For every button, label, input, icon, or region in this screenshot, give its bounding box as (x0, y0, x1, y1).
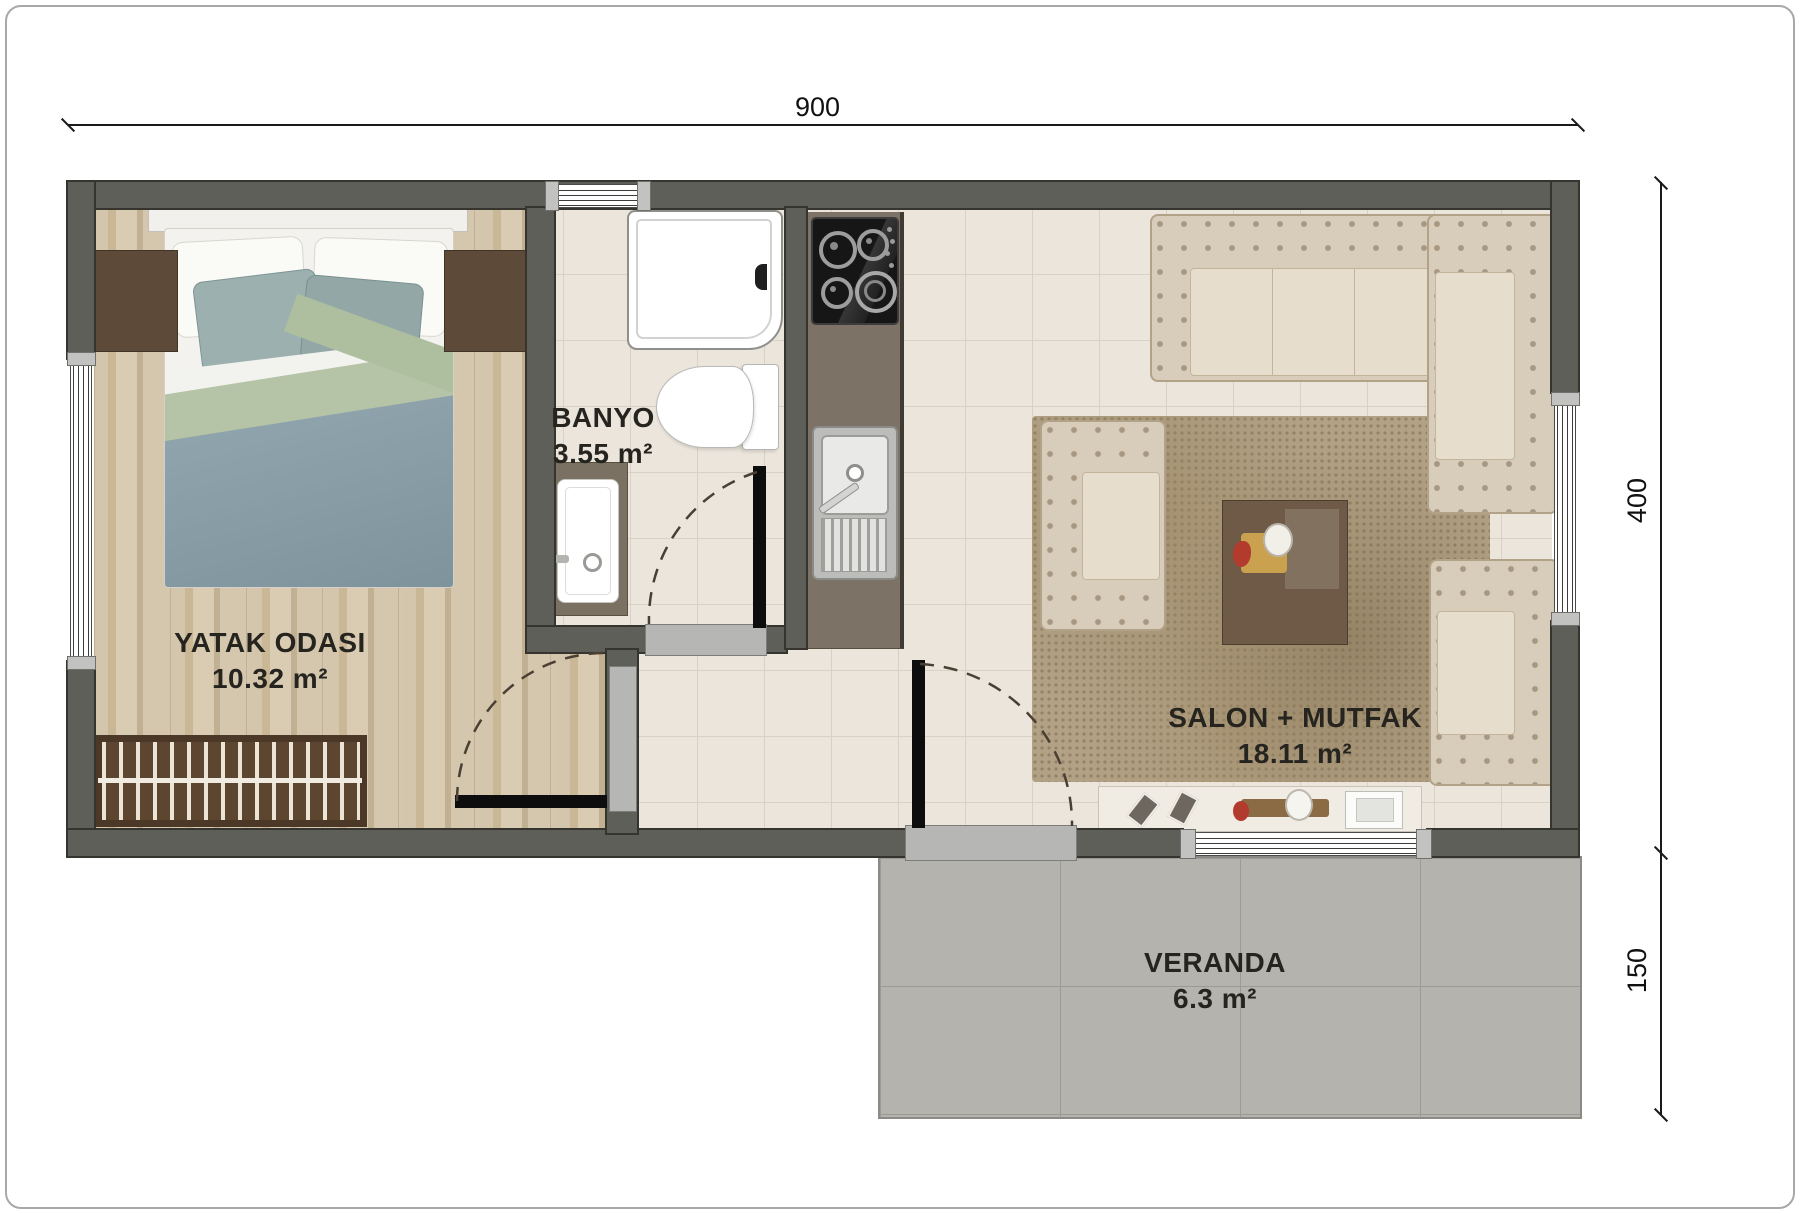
entrance-door-leaf (912, 660, 925, 828)
bathroom-vanity (548, 462, 628, 616)
window-right-cap-bottom (1551, 612, 1580, 626)
bathroom-label: BANYO 3.55 m² (528, 400, 678, 473)
sofa-seat-cushions (1190, 268, 1438, 376)
bedroom-label: YATAK ODASI 10.32 m² (150, 625, 390, 698)
bedroom-name: YATAK ODASI (174, 625, 366, 661)
dim-width-label: 900 (795, 92, 840, 123)
wall-top (68, 182, 1578, 208)
stove-knob (885, 251, 890, 256)
window-right (1554, 404, 1576, 614)
living-name: SALON + MUTFAK (1168, 700, 1422, 736)
picture-frame-1 (1126, 792, 1160, 828)
kitchen-sink-unit (812, 426, 898, 580)
burner-icon (821, 277, 853, 309)
wall-right-upper (1552, 182, 1578, 392)
window-salon-cap-right (1416, 829, 1432, 859)
dim-line-top (68, 124, 1578, 126)
decor-mirror (1285, 789, 1313, 821)
drainboard (821, 518, 887, 572)
veranda-label: VERANDA 6.3 m² (1090, 945, 1340, 1018)
stove-knob (887, 227, 892, 232)
living-area: 18.11 m² (1238, 736, 1353, 772)
bathroom-door-threshold (645, 624, 767, 656)
corner-sofa-right (1427, 214, 1558, 514)
bathroom-area: 3.55 m² (553, 436, 653, 472)
wall-bathroom-bottom (527, 627, 650, 652)
nightstand-right (444, 250, 529, 352)
floorplan-canvas: YATAK ODASI 10.32 m² BANYO 3.55 m² SALON… (0, 0, 1800, 1214)
nightstand-left (94, 250, 178, 352)
bedroom-area: 10.32 m² (212, 661, 328, 697)
bathroom-sink (557, 479, 619, 603)
burner-icon (857, 229, 889, 261)
bench-rail (98, 778, 362, 783)
veranda-name: VERANDA (1144, 945, 1286, 981)
window-top-cap-left (545, 181, 559, 211)
kitchen-drain-icon (846, 464, 864, 482)
picture-frame-2 (1167, 790, 1199, 826)
bathroom-door-leaf (753, 466, 766, 628)
shower (627, 210, 783, 350)
bedroom-door-threshold (609, 666, 637, 812)
wall-bottom-right (1428, 830, 1578, 856)
wall-right-lower (1552, 622, 1578, 856)
living-label: SALON + MUTFAK 18.11 m² (1160, 700, 1430, 773)
stove-knob (890, 239, 895, 244)
armchair-left (1040, 420, 1166, 631)
sofa-right-seat (1435, 272, 1515, 460)
window-right-cap-top (1551, 392, 1580, 406)
window-top-bathroom (556, 184, 640, 208)
coffee-table-vase (1263, 523, 1293, 557)
window-left-cap-bottom (67, 656, 96, 670)
bench-radiator (95, 735, 367, 827)
window-left (70, 362, 92, 660)
dim-height-main-label: 400 (1622, 478, 1653, 523)
wall-bottom-left (68, 830, 907, 856)
stove-hob (811, 217, 899, 325)
dim-line-right (1660, 182, 1662, 1115)
wall-kitchen-left (786, 208, 806, 648)
burner-icon (819, 231, 857, 269)
entrance-door-threshold (905, 825, 1077, 861)
tv (1345, 791, 1403, 829)
tv-console (1098, 786, 1422, 832)
wall-bottom-mid (1073, 830, 1182, 856)
dim-height-veranda-label: 150 (1622, 948, 1653, 993)
bathroom-name: BANYO (551, 400, 655, 436)
bedroom-door-leaf (455, 795, 607, 808)
armchair-right (1429, 559, 1559, 786)
window-left-cap-top (67, 352, 96, 366)
armchair-left-seat (1082, 472, 1160, 580)
window-salon-cap-left (1180, 829, 1196, 859)
wall-left-upper (68, 182, 94, 358)
veranda-area: 6.3 m² (1173, 981, 1257, 1017)
double-bed (164, 228, 454, 588)
stove-knob (889, 263, 894, 268)
drain-icon (583, 553, 602, 572)
coffee-table-top-right (1285, 509, 1339, 589)
armchair-right-seat (1437, 611, 1515, 735)
shower-handle-icon (755, 264, 767, 290)
coffee-table (1222, 500, 1348, 645)
window-salon-veranda (1193, 832, 1419, 856)
decor-flower (1233, 801, 1249, 821)
wall-left-lower (68, 662, 94, 856)
window-top-cap-right (637, 181, 651, 211)
wall-bathroom-bottom-stub (765, 627, 786, 652)
burner-icon (855, 271, 897, 313)
